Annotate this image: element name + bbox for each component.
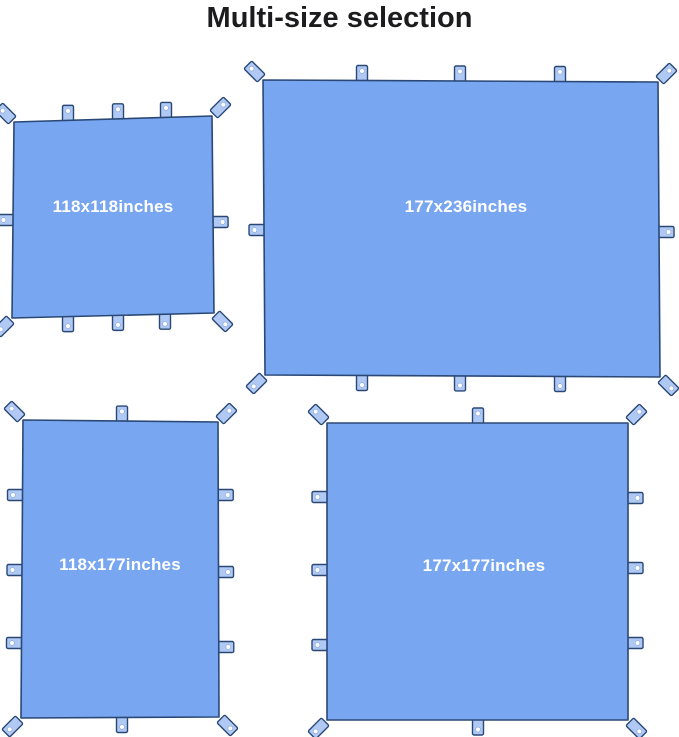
tie-tab [4, 401, 25, 422]
tarp-body [263, 80, 660, 377]
grommet-hole [1, 218, 6, 223]
tie-tab [308, 718, 329, 737]
product-image-canvas: Multi-size selection 118x118inches 177x2… [0, 0, 679, 737]
tarp-panel-118x177: 118x177inches [0, 400, 248, 737]
grommet-hole [116, 107, 121, 112]
tie-tab [0, 103, 16, 124]
grommet-hole [558, 70, 563, 75]
grommet-hole [226, 645, 231, 650]
grommet-hole [360, 69, 365, 74]
grommet-hole [558, 384, 563, 389]
tarp-graphic-118x118 [0, 104, 228, 336]
tarp-size-label-118x177: 118x177inches [59, 555, 181, 575]
grommet-hole [476, 411, 481, 416]
grommet-hole [120, 725, 125, 730]
grommet-hole [252, 228, 257, 233]
tie-tab [216, 403, 237, 424]
grommet-hole [66, 108, 71, 113]
tarp-graphic-177x236 [244, 55, 679, 400]
tarp-size-label-177x177: 177x177inches [423, 556, 546, 576]
grommet-hole [635, 641, 640, 646]
tarp-panel-118x118: 118x118inches [0, 104, 228, 336]
grommet-hole [220, 220, 225, 225]
grommet-hole [116, 322, 121, 327]
tarp-body [12, 116, 214, 318]
tie-tab [246, 373, 267, 394]
tie-tab [2, 716, 23, 737]
grommet-hole [635, 566, 640, 571]
tie-tab [244, 61, 265, 82]
grommet-hole [360, 383, 365, 388]
grommet-hole [458, 69, 463, 74]
tarp-panel-177x236: 177x236inches [244, 55, 679, 400]
grommet-hole [315, 568, 320, 573]
tie-tab [217, 715, 238, 736]
tarp-size-label-177x236: 177x236inches [405, 197, 528, 217]
grommet-hole [225, 493, 230, 498]
image-title: Multi-size selection [0, 2, 679, 35]
tie-tab [210, 97, 231, 118]
tarp-size-label-118x118: 118x118inches [53, 197, 174, 217]
grommet-hole [120, 409, 125, 414]
tie-tab [308, 404, 329, 425]
grommet-hole [163, 321, 168, 326]
tie-tab [626, 404, 647, 425]
grommet-hole [476, 727, 481, 732]
grommet-hole [10, 568, 15, 573]
grommet-hole [10, 641, 15, 646]
grommet-hole [635, 496, 640, 501]
tie-tab [626, 718, 647, 737]
grommet-hole [458, 383, 463, 388]
tie-tab [656, 63, 677, 84]
grommet-hole [66, 324, 71, 329]
tie-tab [0, 316, 14, 337]
grommet-hole [315, 495, 320, 500]
grommet-hole [164, 105, 169, 110]
grommet-hole [11, 493, 16, 498]
tie-tab [212, 311, 233, 332]
tie-tab [658, 375, 679, 396]
grommet-hole [315, 643, 320, 648]
tarp-panel-177x177: 177x177inches [300, 400, 679, 737]
grommet-hole [666, 230, 671, 235]
grommet-hole [226, 570, 231, 575]
